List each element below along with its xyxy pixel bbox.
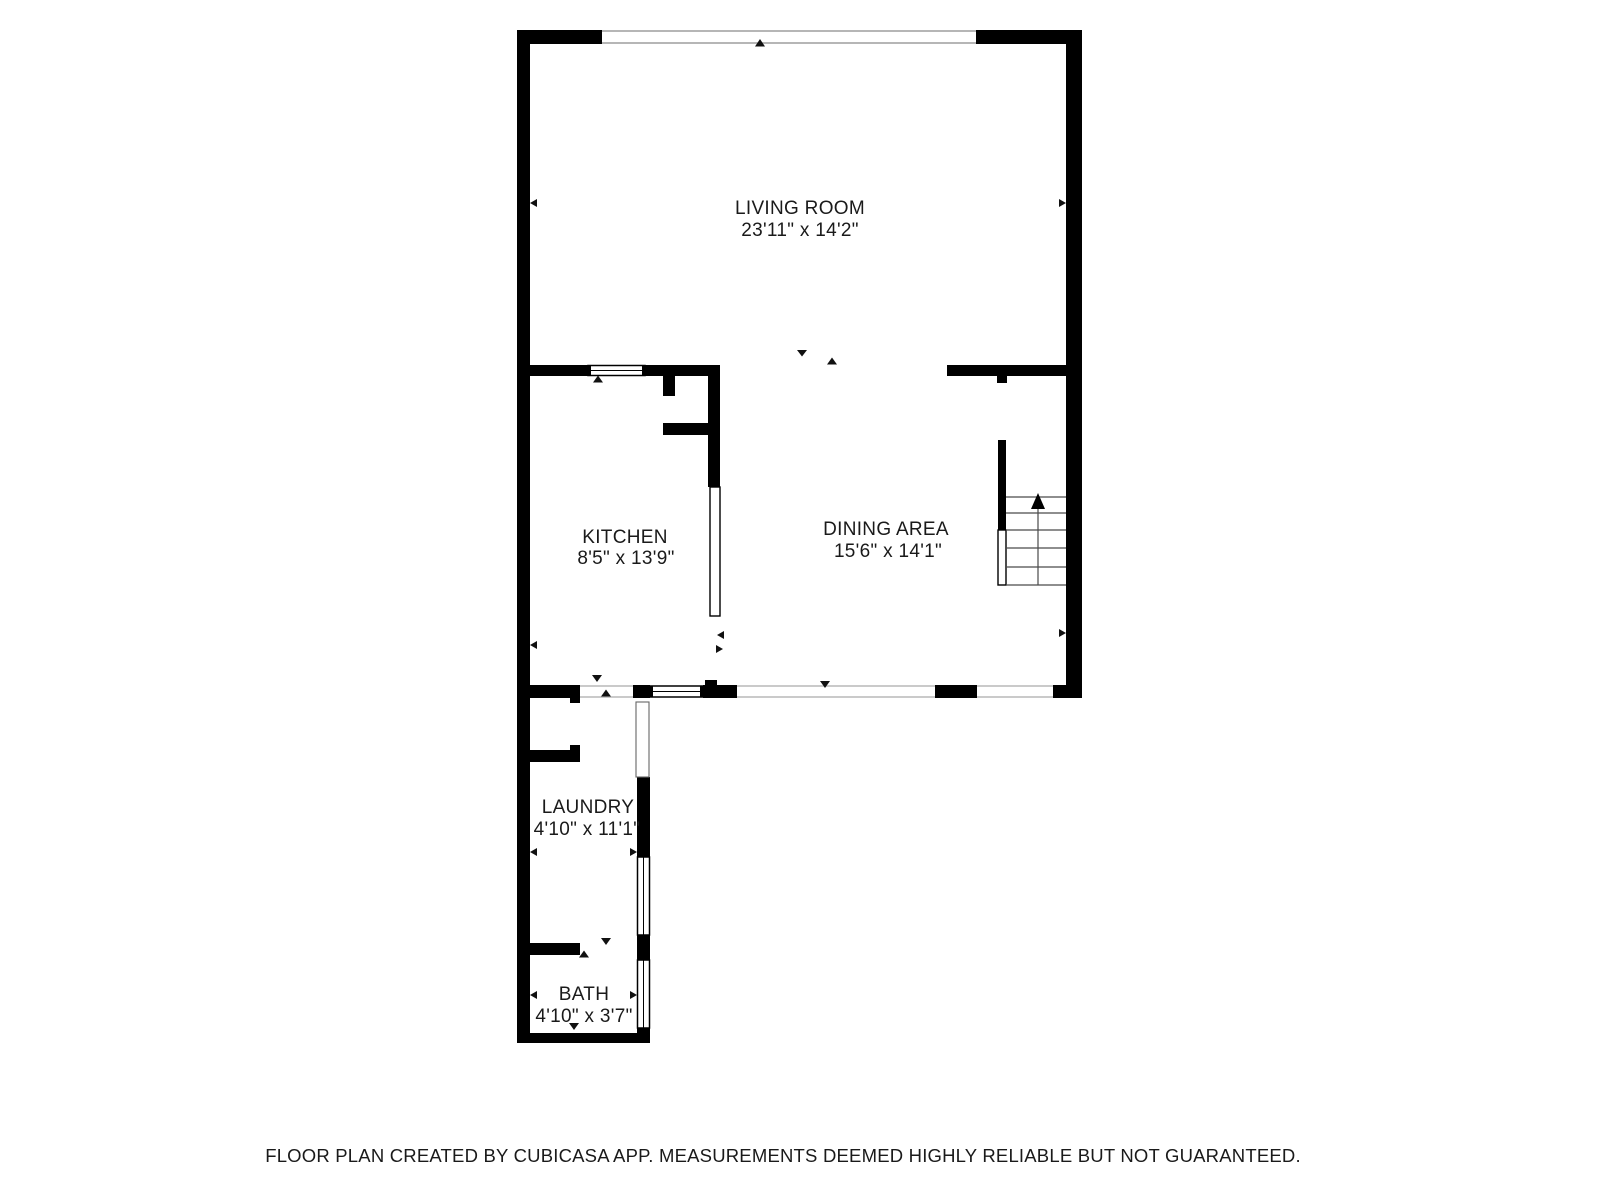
- arrow-left-icon: [530, 991, 537, 999]
- footer-disclaimer: FLOOR PLAN CREATED BY CUBICASA APP. MEAS…: [265, 1145, 1301, 1166]
- wall-stair-stub: [997, 376, 1007, 383]
- wall-kitchen-top-a: [530, 365, 588, 376]
- room-dimensions: 8'5" x 13'9": [577, 548, 674, 569]
- marker-down-icon: [592, 675, 602, 682]
- stair-railing: [998, 530, 1006, 585]
- window-kitchen: [588, 365, 645, 376]
- room-label-kitchen: KITCHEN 8'5" x 13'9": [577, 527, 674, 569]
- wall-bottom-c: [703, 685, 737, 698]
- arrow-left-icon: [530, 848, 537, 856]
- marker-down-icon: [601, 938, 611, 945]
- room-name: LAUNDRY: [542, 797, 635, 818]
- stairs-up-arrow-icon: [1031, 493, 1045, 509]
- room-label-dining-area: DINING AREA 15'6" x 14'1": [823, 519, 949, 562]
- wall-laundry-right-b: [637, 935, 650, 960]
- wall-closet-bottom: [530, 750, 580, 762]
- marker-up-icon: [593, 376, 603, 383]
- wall-bottom-notch: [705, 680, 717, 685]
- wall-exterior-right: [1066, 30, 1082, 698]
- marker-down-icon: [820, 681, 830, 688]
- arrow-right-icon: [630, 991, 637, 999]
- room-label-laundry: LAUNDRY 4'10" x 11'1": [534, 797, 641, 840]
- wall-pantry-corner: [663, 423, 708, 435]
- floor-plan-canvas: LIVING ROOM 23'11" x 14'2" KITCHEN 8'5" …: [0, 0, 1600, 1200]
- room-label-living-room: LIVING ROOM 23'11" x 14'2": [735, 198, 865, 241]
- wall-bottom-e: [1053, 685, 1082, 698]
- arrow-right-icon: [716, 645, 723, 653]
- room-name: KITCHEN: [582, 527, 668, 548]
- wall-exterior-left: [517, 30, 530, 1043]
- floor-plan-page: LIVING ROOM 23'11" x 14'2" KITCHEN 8'5" …: [0, 0, 1600, 1200]
- arrow-right-icon: [1059, 199, 1066, 207]
- wall-bath-divider: [530, 943, 580, 955]
- marker-up-icon: [827, 358, 837, 365]
- room-name: LIVING ROOM: [735, 198, 865, 219]
- room-dimensions: 23'11" x 14'2": [741, 220, 859, 241]
- wall-pantry-stub: [663, 376, 675, 396]
- arrow-left-icon: [530, 641, 537, 649]
- room-dimensions: 15'6" x 14'1": [834, 541, 942, 562]
- arrow-left-icon: [717, 631, 724, 639]
- wall-kitchen-right: [708, 365, 720, 487]
- marker-up-icon: [579, 951, 589, 958]
- door-leaf: [636, 702, 649, 777]
- window-living-room-top: [602, 31, 976, 43]
- wall-bottom-a: [517, 685, 580, 698]
- window-kitchen-bottom: [650, 686, 703, 697]
- wall-bottom-b: [633, 685, 650, 698]
- wall-dining-top: [947, 365, 1066, 376]
- window-laundry: [638, 857, 650, 935]
- room-name: DINING AREA: [823, 519, 949, 540]
- wall-bottom-exterior: [517, 1033, 650, 1043]
- marker-down-icon: [797, 350, 807, 357]
- room-name: BATH: [559, 984, 609, 1005]
- kitchen-counter: [710, 487, 720, 616]
- wall-laundry-right-a: [637, 777, 650, 857]
- marker-up-icon: [601, 690, 611, 697]
- arrow-right-icon: [1059, 629, 1066, 637]
- fixtures: [636, 487, 1006, 777]
- window-bath: [638, 960, 650, 1028]
- room-dimensions: 4'10" x 3'7": [535, 1006, 632, 1027]
- arrow-left-icon: [530, 199, 537, 207]
- arrow-right-icon: [630, 848, 637, 856]
- wall-closet-jamb-top: [570, 698, 580, 703]
- room-label-bath: BATH 4'10" x 3'7": [535, 984, 632, 1027]
- wall-closet-jamb-bottom: [570, 745, 580, 750]
- stairs: [1006, 497, 1066, 585]
- measurement-arrows: [530, 199, 1066, 999]
- wall-bottom-d: [935, 685, 977, 698]
- room-dimensions: 4'10" x 11'1": [534, 819, 641, 840]
- wall-stair-side: [998, 440, 1006, 530]
